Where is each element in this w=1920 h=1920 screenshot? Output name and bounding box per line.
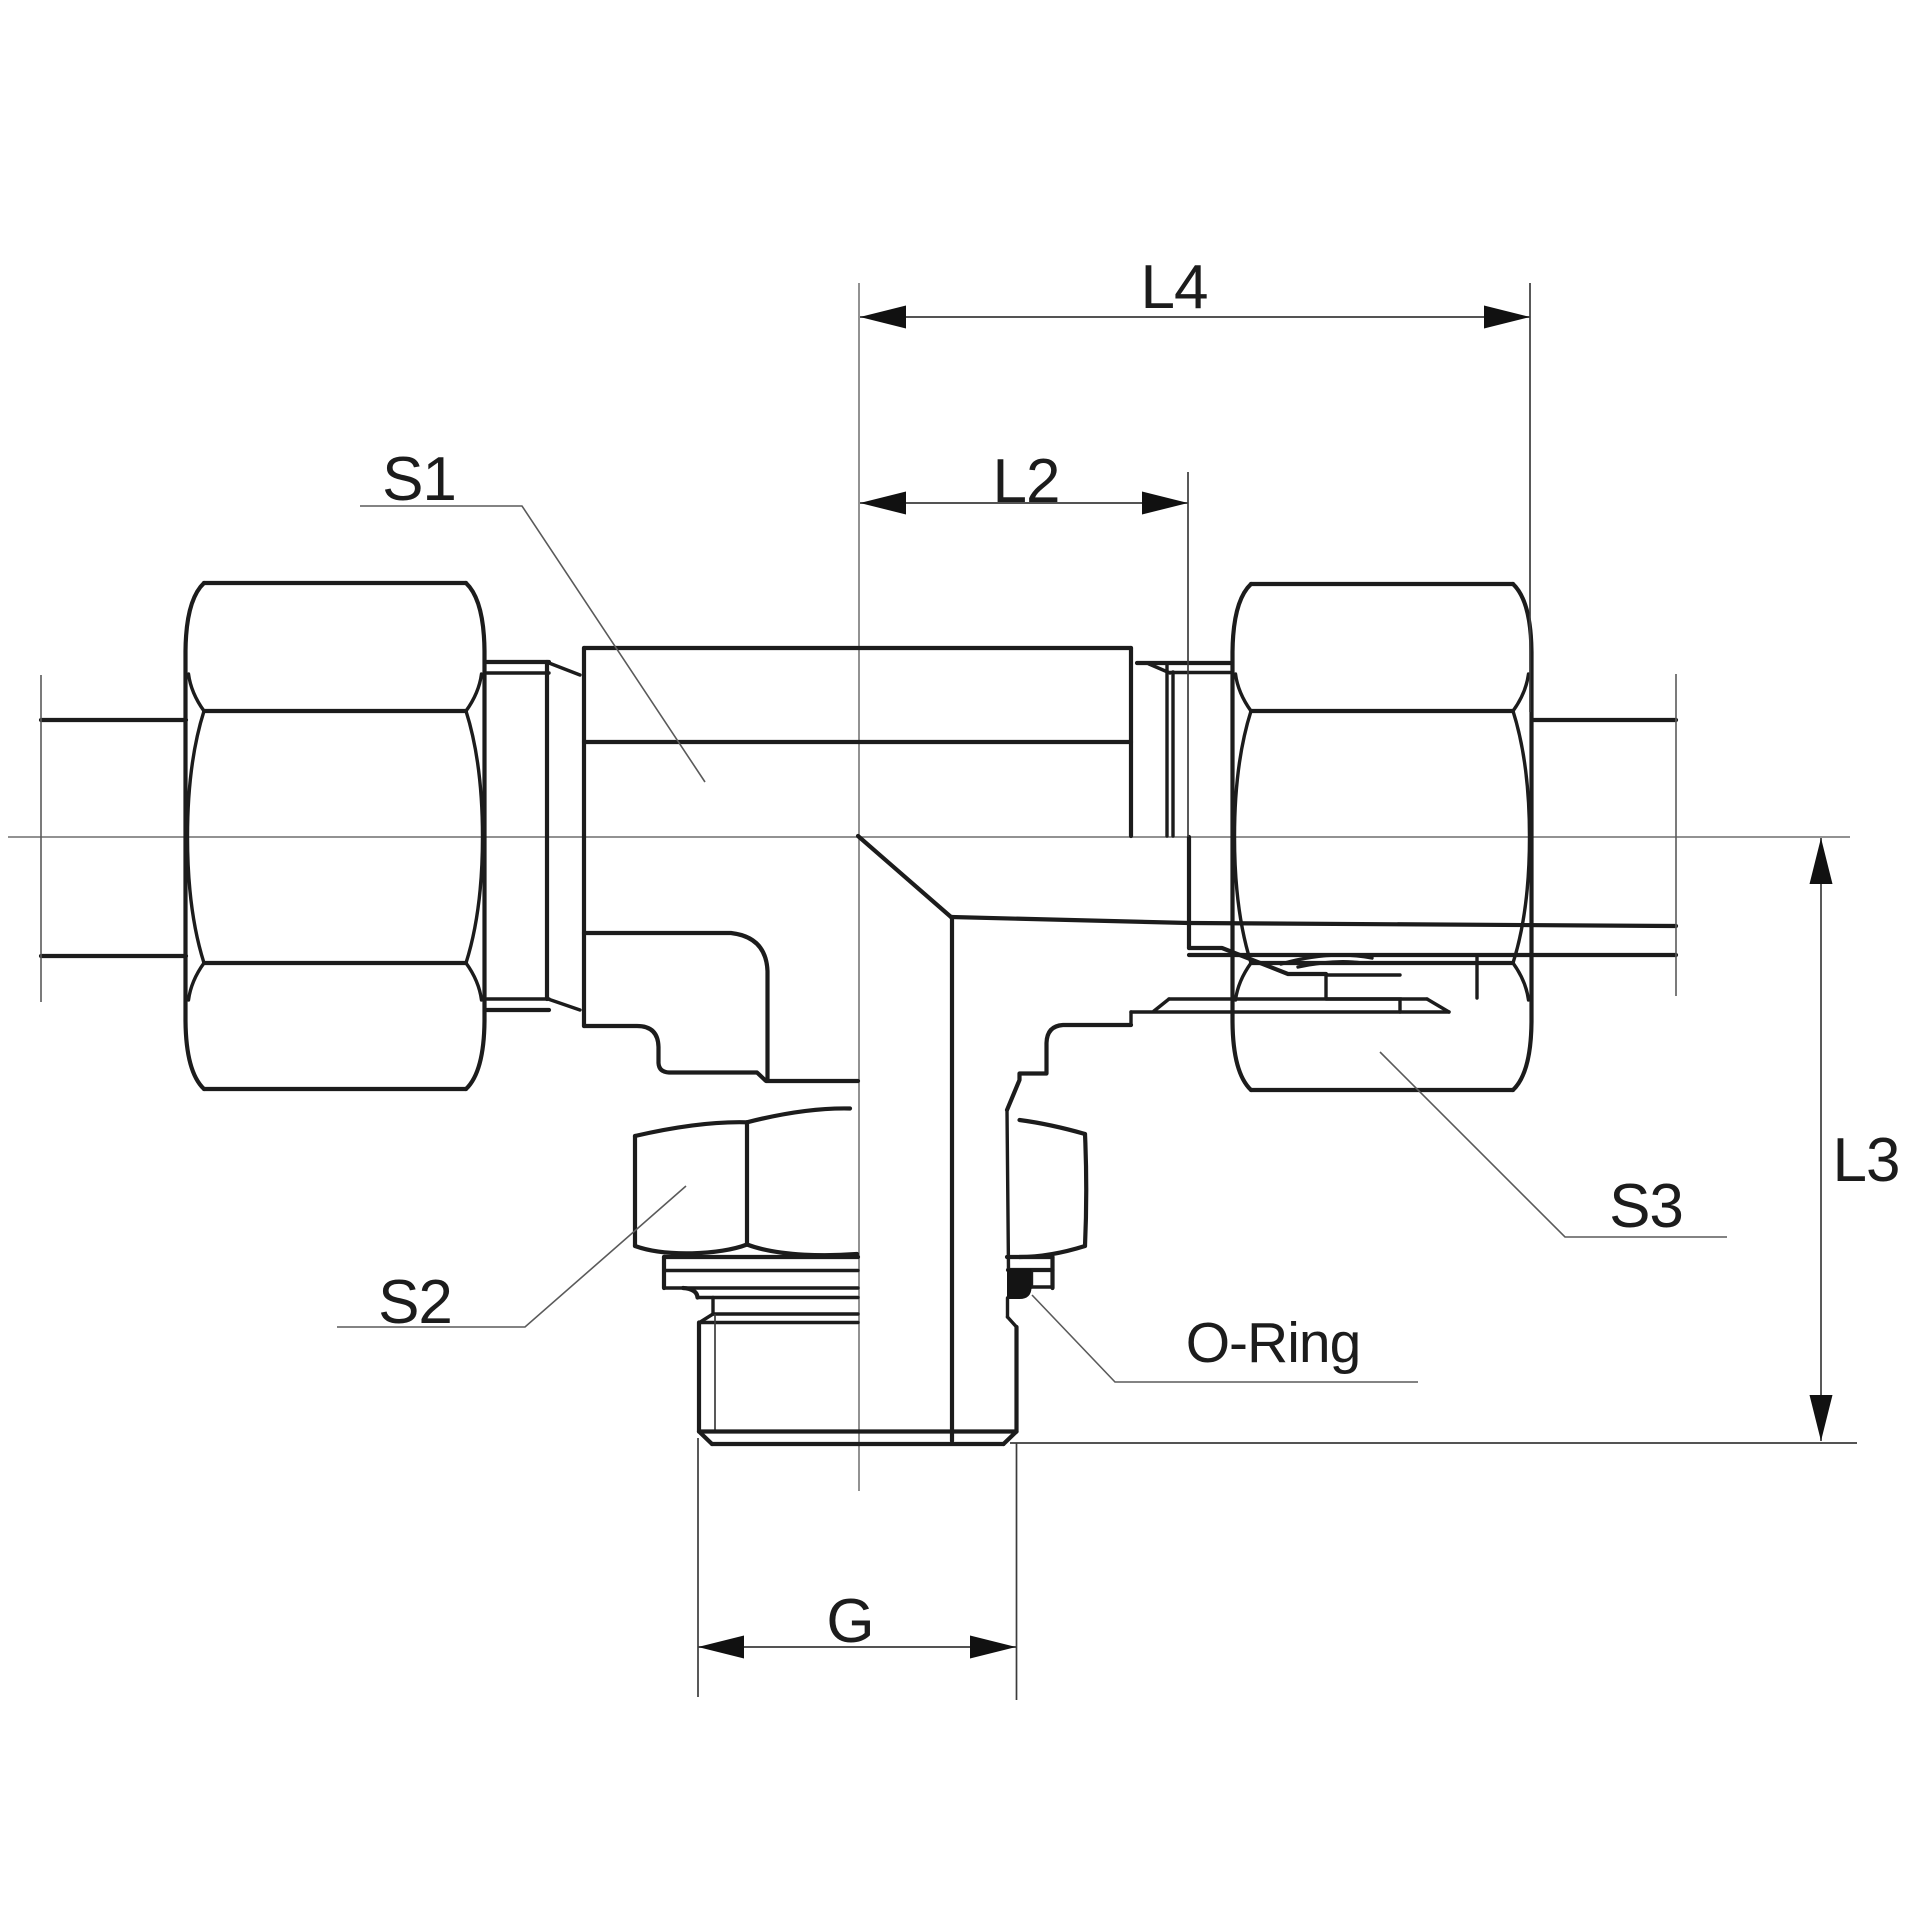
svg-text:L4: L4 bbox=[1141, 253, 1208, 322]
svg-text:S1: S1 bbox=[382, 445, 456, 514]
svg-text:L2: L2 bbox=[993, 447, 1060, 516]
svg-text:L3: L3 bbox=[1833, 1126, 1900, 1195]
svg-text:O-Ring: O-Ring bbox=[1186, 1311, 1361, 1375]
svg-text:G: G bbox=[826, 1587, 873, 1656]
svg-text:S3: S3 bbox=[1609, 1172, 1683, 1241]
